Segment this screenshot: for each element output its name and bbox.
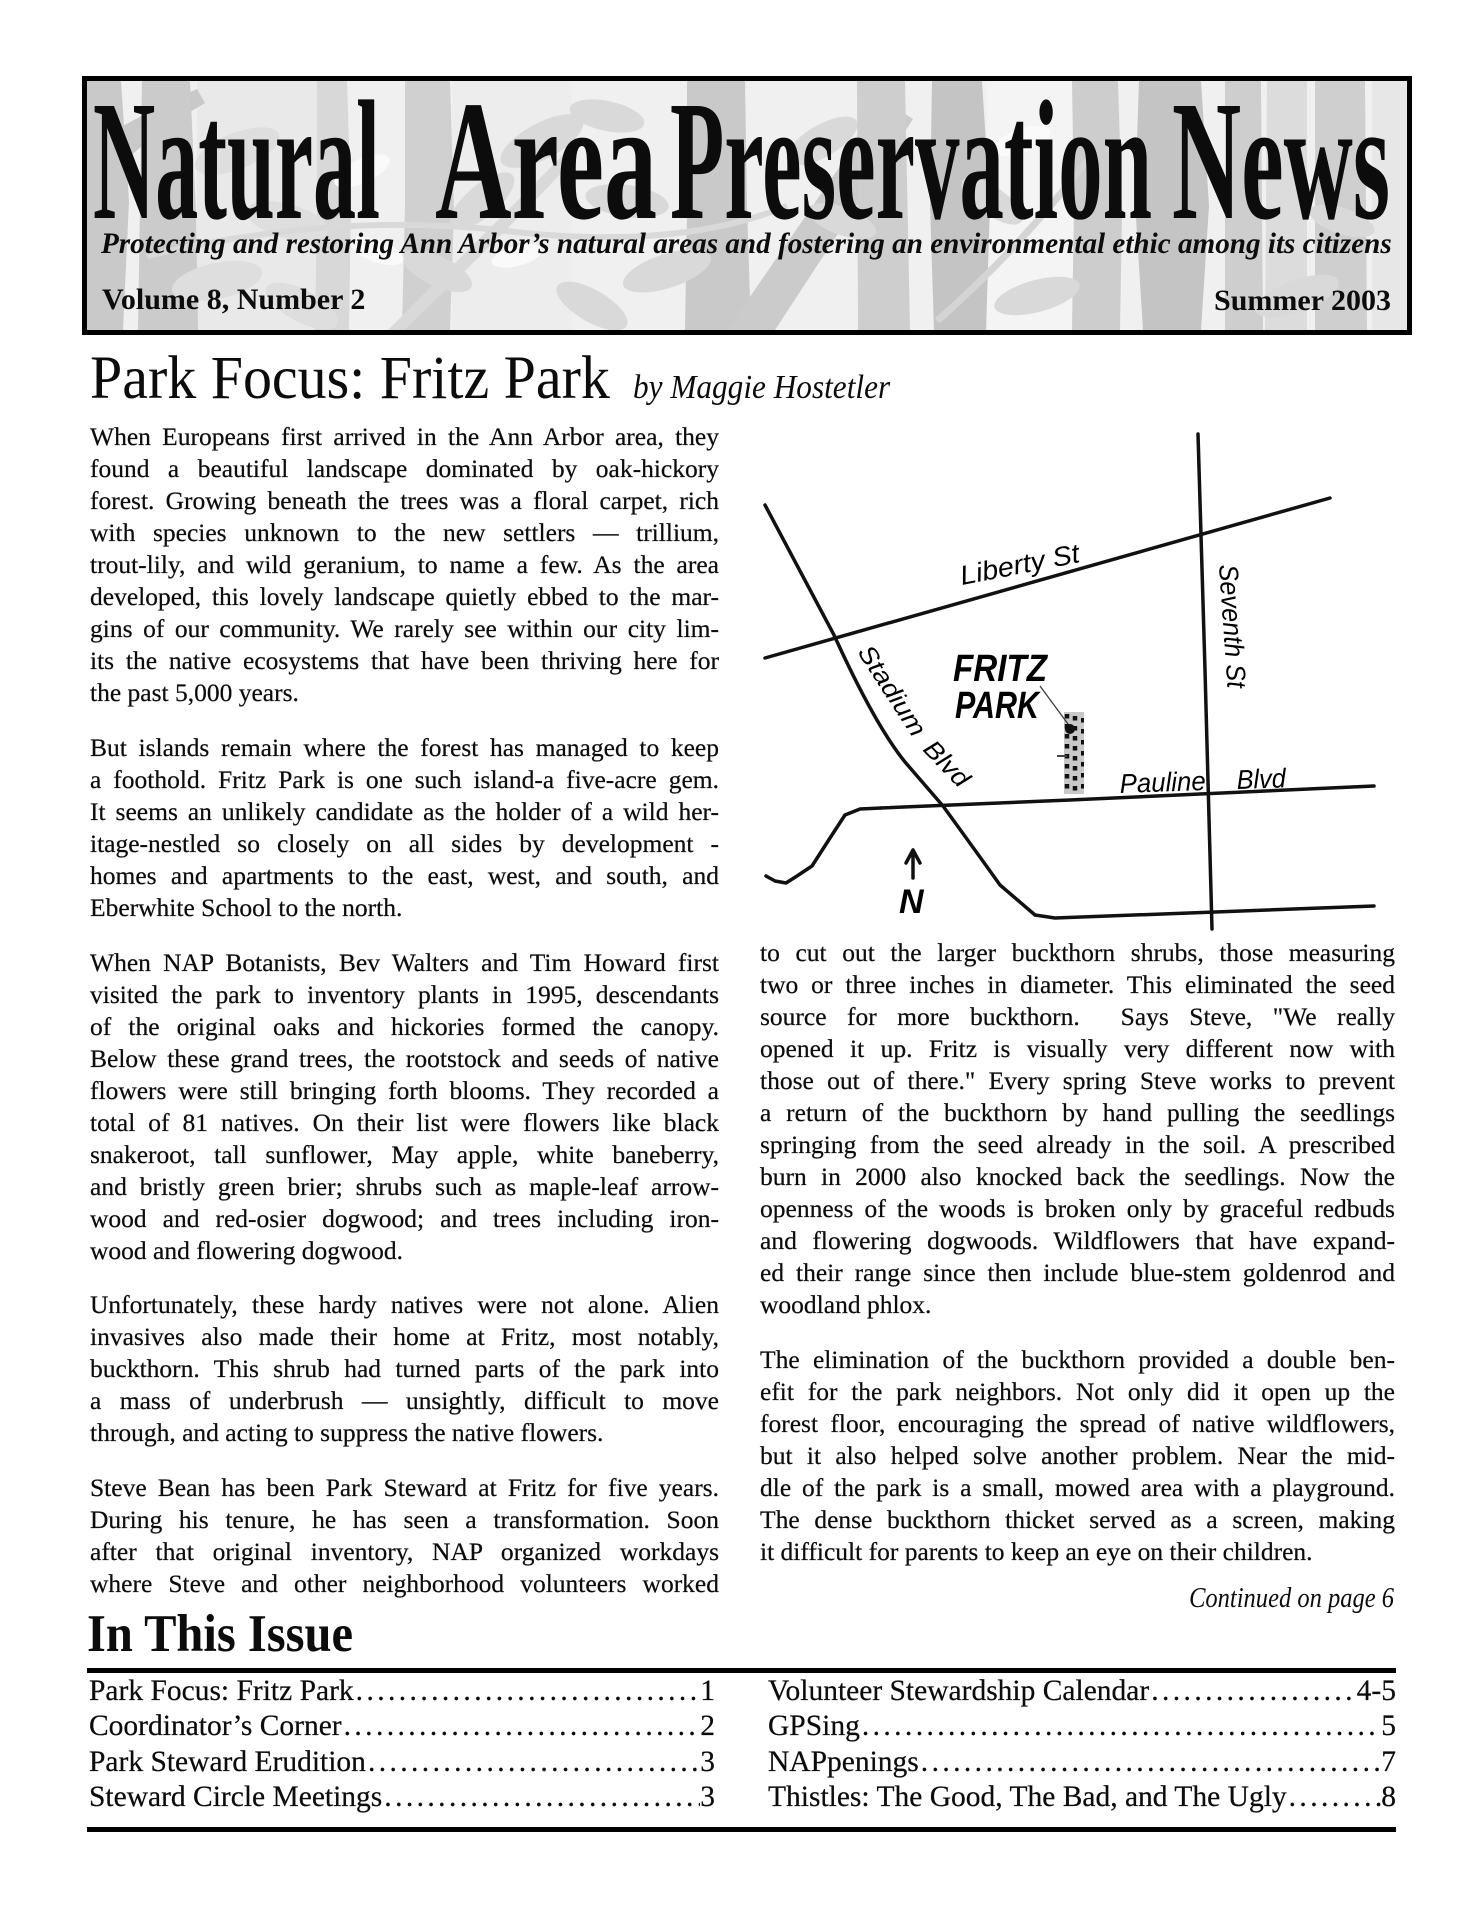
svg-text:PARK: PARK (955, 685, 1041, 727)
svg-text:Stadium: Stadium (852, 640, 932, 742)
svg-text:N: N (899, 883, 925, 921)
svg-text:Seventh St: Seventh St (1213, 563, 1252, 690)
svg-text:Liberty St: Liberty St (957, 538, 1083, 591)
svg-text:Blvd: Blvd (1236, 763, 1287, 795)
svg-text:FRITZ: FRITZ (953, 648, 1049, 690)
svg-text:Pauline: Pauline (1119, 766, 1206, 799)
